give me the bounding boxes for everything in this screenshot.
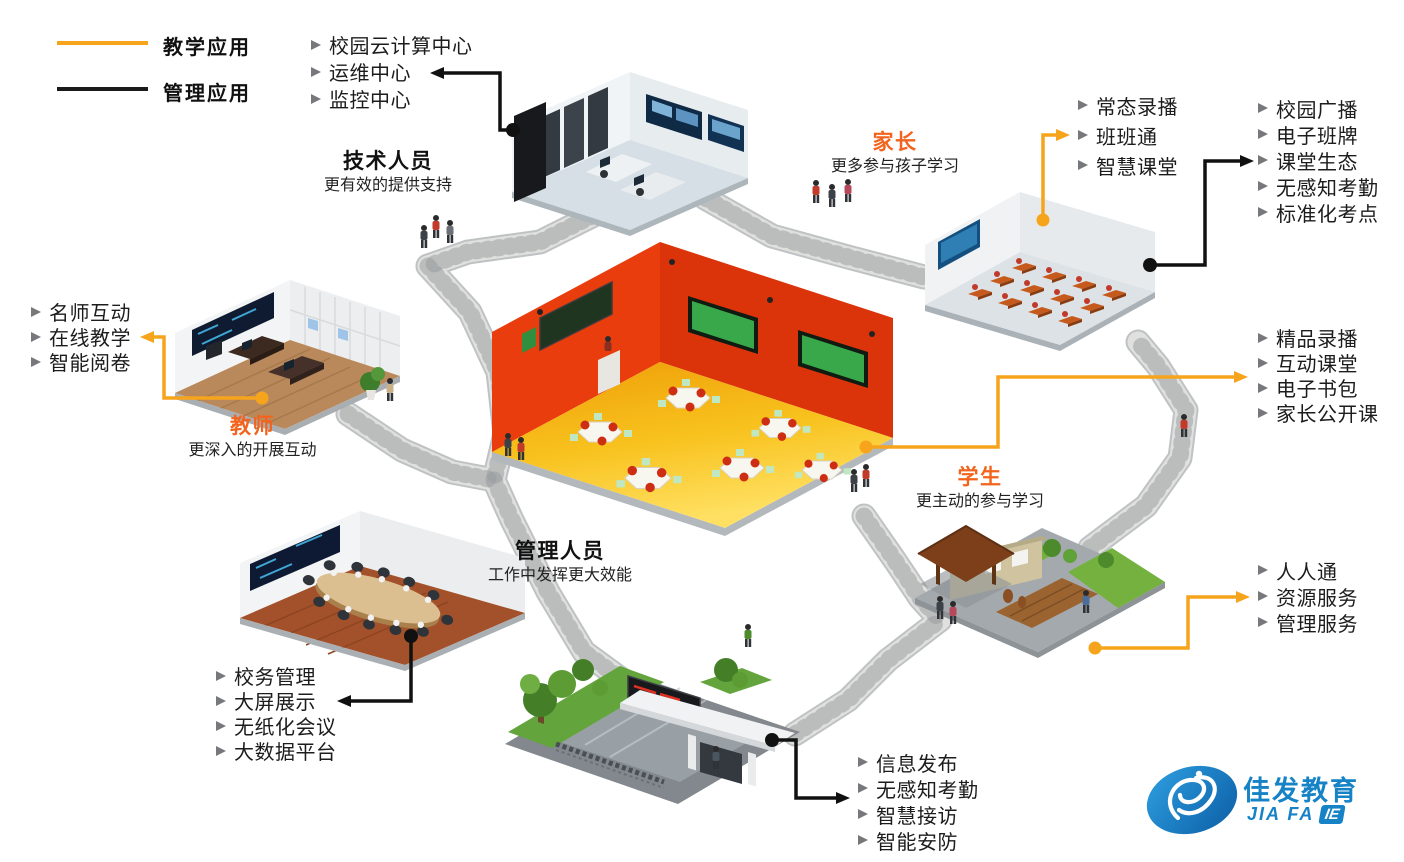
arrow-bullet-icon — [1258, 181, 1268, 191]
role-title: 学生 — [890, 466, 1070, 490]
list-item: 在线教学 — [31, 324, 131, 349]
role-title: 家长 — [805, 131, 985, 155]
arrow-bullet-icon — [31, 332, 41, 342]
list-item: 智能安防 — [858, 827, 979, 853]
jiafa-logo-icon — [1139, 756, 1246, 845]
role-title: 技术人员 — [288, 150, 488, 174]
role-subtitle: 工作中发挥更大效能 — [465, 566, 655, 586]
list-item: 校园广播 — [1258, 95, 1379, 121]
room-meeting — [240, 511, 525, 671]
feature-list-student-teaching: 精品录播 互动课堂 电子书包 家长公开课 — [1258, 325, 1379, 425]
legend-label-management: 管理应用 — [163, 77, 251, 106]
arrow-bullet-icon — [858, 809, 868, 819]
arrow-bullet-icon — [216, 721, 226, 731]
feature-list-classroom-management: 校园广播 电子班牌 课堂生态 无感知考勤 标准化考点 — [1258, 95, 1379, 225]
list-item: 管理服务 — [1258, 609, 1358, 635]
list-item: 名师互动 — [31, 299, 131, 324]
list-item: 大数据平台 — [216, 738, 337, 763]
list-item: 标准化考点 — [1258, 199, 1379, 225]
arrow-bullet-icon — [216, 746, 226, 756]
role-parent: 家长 更多参与孩子学习 — [805, 131, 985, 177]
role-title: 管理人员 — [465, 540, 655, 564]
arrow-bullet-icon — [216, 671, 226, 681]
list-item: 监控中心 — [311, 85, 473, 112]
room-courtyard — [915, 526, 1165, 658]
arrow-bullet-icon — [1258, 565, 1268, 575]
jiafa-logo-name: 佳发教育 — [1243, 769, 1359, 808]
jiafa-logo-badge: IE — [1319, 805, 1347, 824]
list-item: 无感知考勤 — [1258, 173, 1379, 199]
list-item: 课堂生态 — [1258, 147, 1379, 173]
arrow-bullet-icon — [1258, 617, 1268, 627]
list-item: 校园云计算中心 — [311, 31, 473, 58]
arrow-bullet-icon — [858, 783, 868, 793]
role-title: 教师 — [160, 415, 345, 439]
arrow-bullet-icon — [31, 357, 41, 367]
role-subtitle: 更深入的开展互动 — [160, 441, 345, 461]
feature-list-admin: 校务管理 大屏展示 无纸化会议 大数据平台 — [216, 663, 337, 763]
list-item: 无感知考勤 — [858, 775, 979, 801]
list-item: 人人通 — [1258, 557, 1358, 583]
arrow-bullet-icon — [858, 757, 868, 767]
arrow-bullet-icon — [858, 835, 868, 845]
feature-list-classroom-teaching: 常态录播 班班通 智慧课堂 — [1078, 90, 1178, 180]
arrow-bullet-icon — [1258, 591, 1268, 601]
role-subtitle: 更有效的提供支持 — [288, 176, 488, 196]
arrow-bullet-icon — [1078, 100, 1088, 110]
feature-list-gate: 信息发布 无感知考勤 智慧接访 智能安防 — [858, 749, 979, 853]
room-school-gate — [505, 658, 800, 804]
arrow-bullet-icon — [1078, 130, 1088, 140]
role-admin: 管理人员 工作中发挥更大效能 — [465, 540, 655, 586]
list-item: 无纸化会议 — [216, 713, 337, 738]
arrow-bullet-icon — [1258, 358, 1268, 368]
list-item: 电子书包 — [1258, 375, 1379, 400]
jiafa-logo-romanized: JIA FA — [1247, 804, 1314, 825]
list-item: 智慧接访 — [858, 801, 979, 827]
list-item: 校务管理 — [216, 663, 337, 688]
arrow-bullet-icon — [216, 696, 226, 706]
arrow-bullet-icon — [1258, 103, 1268, 113]
role-tech: 技术人员 更有效的提供支持 — [288, 150, 488, 196]
arrow-bullet-icon — [1258, 408, 1268, 418]
list-item: 常态录播 — [1078, 90, 1178, 120]
arrow-bullet-icon — [1258, 155, 1268, 165]
arrow-bullet-icon — [1258, 383, 1268, 393]
list-item: 资源服务 — [1258, 583, 1358, 609]
arrow-bullet-icon — [311, 40, 321, 50]
list-item: 智能阅卷 — [31, 349, 131, 374]
list-item: 精品录播 — [1258, 325, 1379, 350]
list-item: 家长公开课 — [1258, 400, 1379, 425]
arrow-bullet-icon — [1078, 160, 1088, 170]
role-student: 学生 更主动的参与学习 — [890, 466, 1070, 512]
arrow-bullet-icon — [1258, 129, 1268, 139]
jiafa-logo-tagline: JIA FA IE — [1247, 804, 1345, 825]
list-item: 运维中心 — [311, 58, 473, 85]
feature-list-teacher: 名师互动 在线教学 智能阅卷 — [31, 299, 131, 374]
list-item: 班班通 — [1078, 120, 1178, 150]
arrow-bullet-icon — [311, 94, 321, 104]
list-item: 互动课堂 — [1258, 350, 1379, 375]
role-subtitle: 更主动的参与学习 — [890, 492, 1070, 512]
list-item: 大屏展示 — [216, 688, 337, 713]
room-smart-classroom — [492, 242, 893, 536]
feature-list-student-services: 人人通 资源服务 管理服务 — [1258, 557, 1358, 635]
list-item: 智慧课堂 — [1078, 150, 1178, 180]
connector-gate — [765, 733, 850, 804]
arrow-bullet-icon — [31, 307, 41, 317]
infographic-smart-campus: 教学应用 管理应用 校园云计算中心 运维中心 监控中心 常态录播 班班通 智慧课… — [0, 0, 1404, 862]
list-item: 电子班牌 — [1258, 121, 1379, 147]
arrow-bullet-icon — [1258, 207, 1268, 217]
arrow-bullet-icon — [311, 67, 321, 77]
legend-label-teaching: 教学应用 — [163, 31, 251, 60]
role-teacher: 教师 更深入的开展互动 — [160, 415, 345, 461]
feature-list-cloud: 校园云计算中心 运维中心 监控中心 — [311, 31, 473, 112]
arrow-bullet-icon — [1258, 333, 1268, 343]
role-subtitle: 更多参与孩子学习 — [805, 157, 985, 177]
list-item: 信息发布 — [858, 749, 979, 775]
